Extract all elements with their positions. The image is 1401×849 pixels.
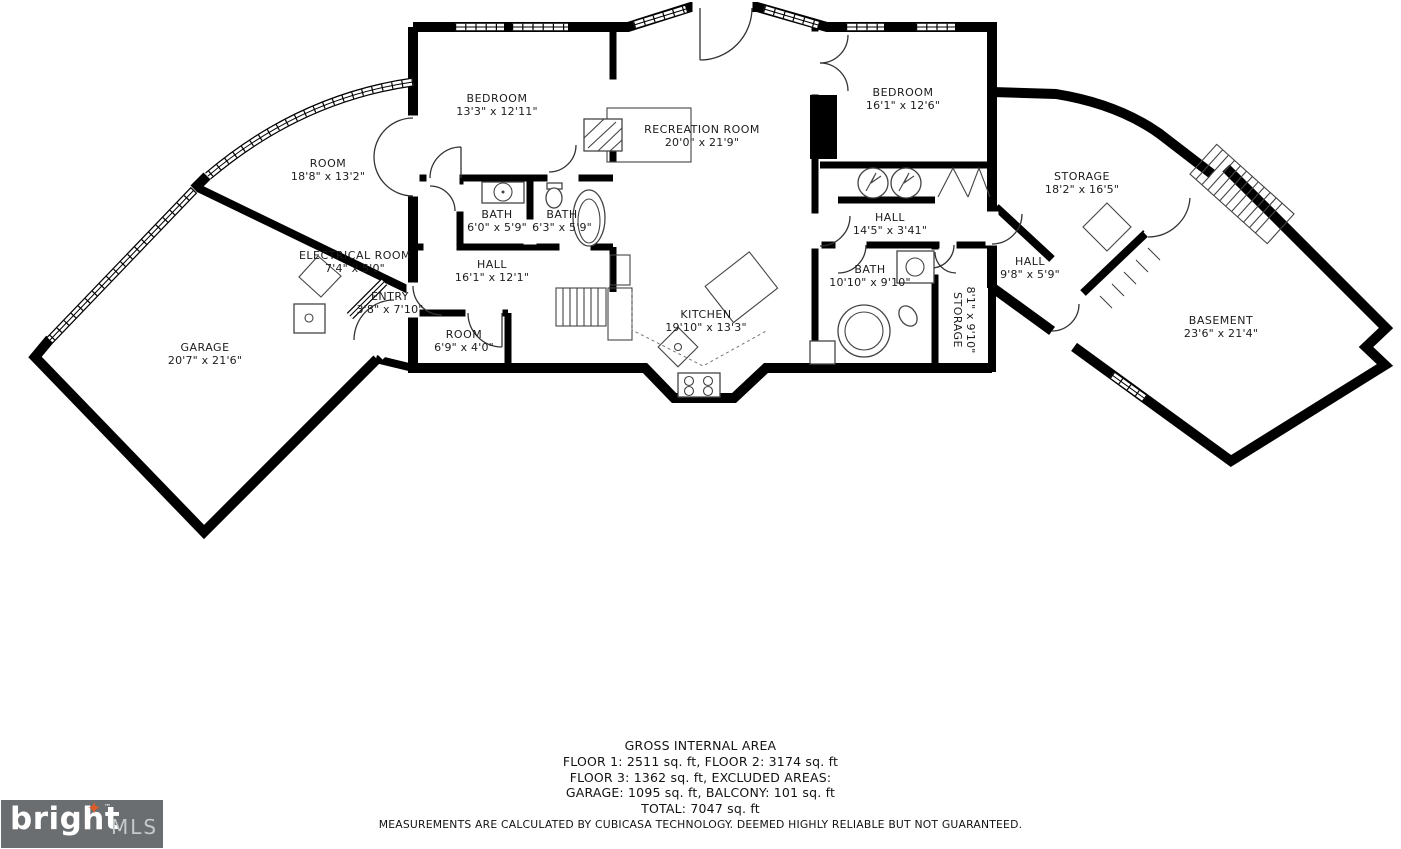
room-label-kitchen: KITCHEN 19'10" x 13'3" <box>665 308 746 334</box>
storage-fan-column <box>1083 203 1131 251</box>
stairs-fan <box>1100 248 1160 308</box>
area-summary-line-3: GARAGE: 1095 sq. ft, BALCONY: 101 sq. ft <box>0 785 1401 801</box>
room-label-hall-upper: HALL 14'5" x 3'41" <box>853 211 927 237</box>
logo-mls-text: MLS <box>111 815 158 839</box>
area-summary: GROSS INTERNAL AREA FLOOR 1: 2511 sq. ft… <box>0 738 1401 832</box>
room-label-room-small: ROOM 6'9" x 4'0" <box>434 328 494 354</box>
room-label-basement: BASEMENT 23'6" x 21'4" <box>1184 314 1258 340</box>
room-label-hall-right: HALL 9'8" x 5'9" <box>1000 255 1060 281</box>
room-label-garage: GARAGE 20'7" x 21'6" <box>168 341 242 367</box>
room-label-room-left: ROOM 18'8" x 13'2" <box>291 157 365 183</box>
stairs-basement <box>1190 144 1294 243</box>
floorplan-page: BEDROOM 13'3" x 12'11" RECREATION ROOM 2… <box>0 0 1401 849</box>
logo-trademark: ™ <box>104 803 111 811</box>
measurement-disclaimer: MEASUREMENTS ARE CALCULATED BY CUBICASA … <box>0 817 1401 832</box>
walls <box>35 7 1386 532</box>
room-label-storage-right: STORAGE 18'2" x 16'5" <box>1045 170 1119 196</box>
room-label-bath-3: BATH 10'10" x 9'10" <box>829 263 910 289</box>
stairs-central <box>556 288 632 340</box>
area-summary-line-4: TOTAL: 7047 sq. ft <box>0 801 1401 817</box>
room-label-recreation-room: RECREATION ROOM 20'0" x 21'9" <box>644 123 760 149</box>
hall-upper-furnaces <box>858 168 990 198</box>
bright-mls-logo: bright ✦ ™ MLS <box>1 800 163 848</box>
room-label-bath-1: BATH 6'0" x 5'9" <box>467 208 527 234</box>
room-label-electrical-room: ELECTRICAL ROOM 7'4" x 5'0" <box>299 249 411 275</box>
room-label-entry: ENTRY 3'8" x 7'10" <box>356 290 423 316</box>
area-summary-line-2: FLOOR 3: 1362 sq. ft, EXCLUDED AREAS: <box>0 770 1401 786</box>
room-label-bedroom-1: BEDROOM 13'3" x 12'11" <box>456 92 537 118</box>
room-label-bath-2: BATH 6'3" x 5'9" <box>532 208 592 234</box>
room-label-storage-small: STORAGE 8'1" x 9'10" <box>951 286 977 353</box>
bath1-fixtures <box>482 182 524 203</box>
room-label-hall-center: HALL 16'1" x 12'1" <box>455 258 529 284</box>
area-summary-title: GROSS INTERNAL AREA <box>0 738 1401 754</box>
logo-star-icon: ✦ <box>87 799 101 819</box>
area-summary-line-1: FLOOR 1: 2511 sq. ft, FLOOR 2: 3174 sq. … <box>0 754 1401 770</box>
room-label-bedroom-2: BEDROOM 16'1" x 12'6" <box>866 86 940 112</box>
